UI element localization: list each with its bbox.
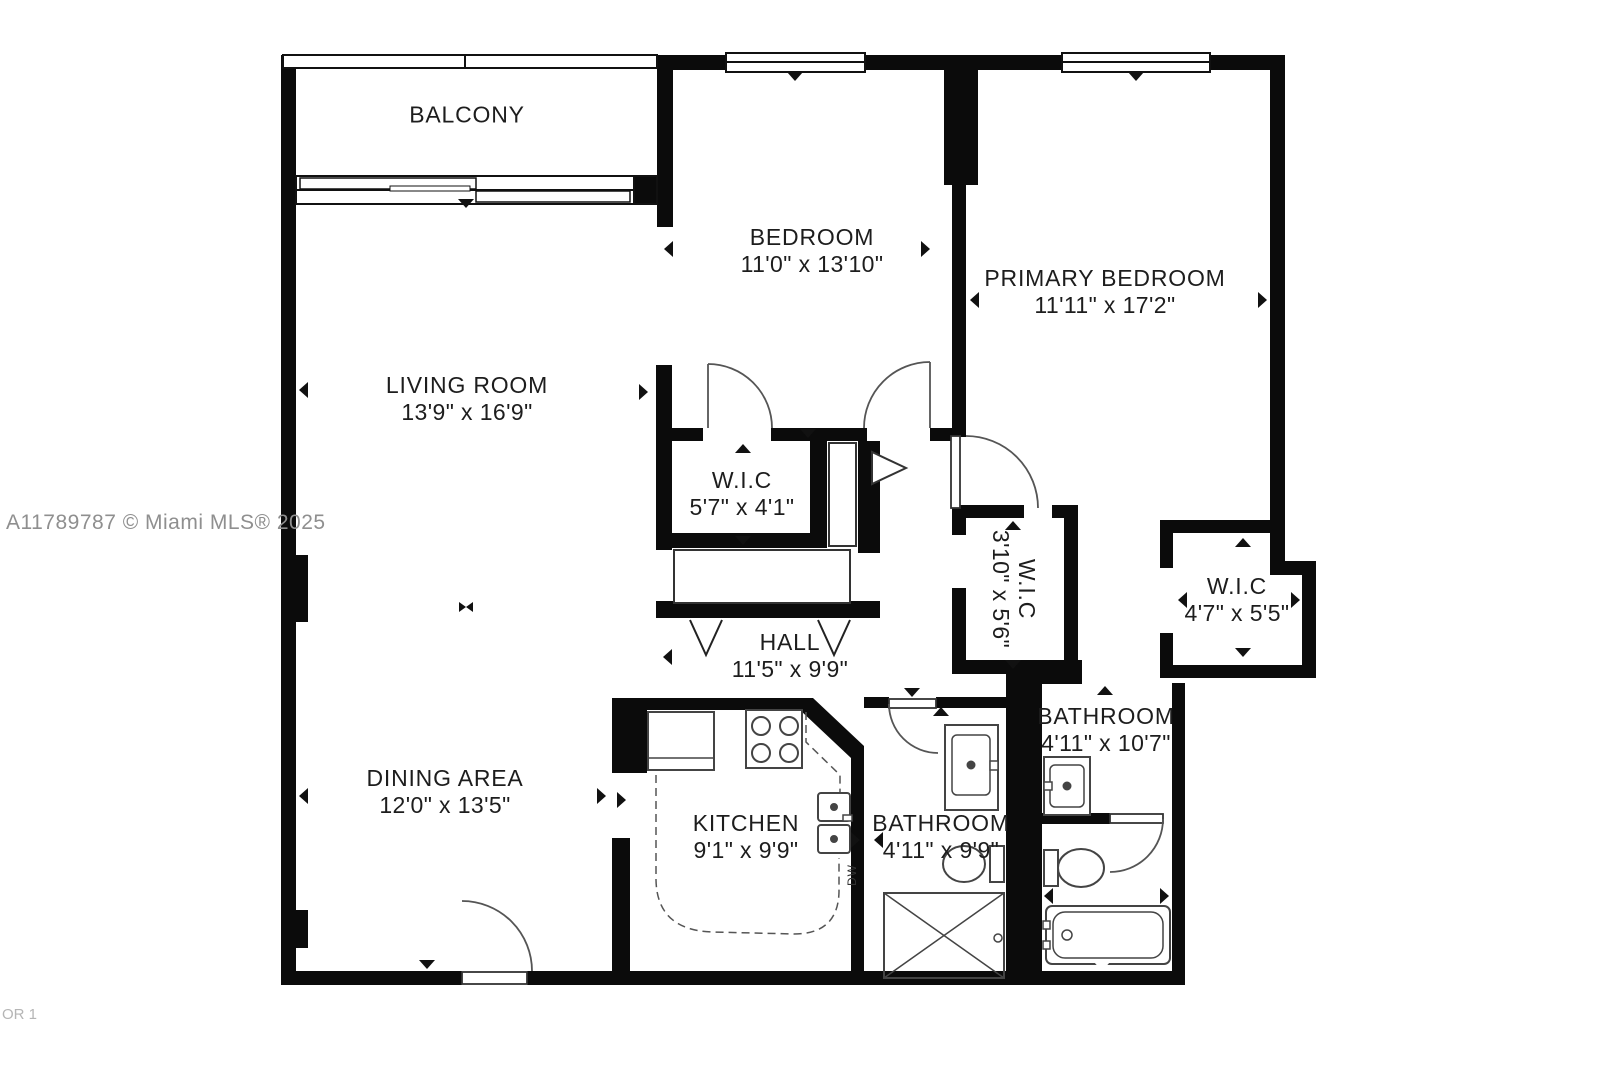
room-dims: 11'11" x 17'2" — [984, 292, 1225, 319]
bath-primary-door-arc — [1110, 819, 1163, 872]
dim-arrow-left — [1044, 888, 1053, 904]
room-label-bathroom-hall: BATHROOM 4'11" x 9'9" — [872, 810, 1010, 864]
dim-arrow-down — [1235, 648, 1251, 657]
room-label-wic-hall: W.I.C 5'7" x 4'1" — [690, 467, 795, 521]
bathroom-primary-fixtures — [1043, 757, 1170, 964]
faucet-icon — [831, 836, 838, 843]
wall-wic-right-outer — [1302, 561, 1316, 677]
hall-niche — [829, 443, 856, 546]
living-marker-icon — [459, 602, 466, 612]
room-name: DINING AREA — [366, 765, 523, 792]
floor-label: OR 1 — [2, 1006, 37, 1023]
wall-kitchen-west-upper — [612, 698, 647, 773]
wall-wic-center-west-a — [952, 505, 966, 535]
wall-wic-center-top-a — [966, 505, 1024, 518]
windows — [283, 53, 1210, 204]
tub-handle-icon — [1043, 921, 1050, 929]
dim-arrow-left — [970, 292, 979, 308]
faucet-icon — [967, 761, 975, 769]
room-name: KITCHEN — [693, 810, 800, 837]
room-label-wic-center: W.I.C 3'10" x 5'6" — [988, 530, 1040, 648]
dim-arrow-up — [1235, 538, 1251, 547]
wall-kitchen-west-lower — [612, 838, 630, 971]
wall-bottom-left — [281, 971, 462, 985]
faucet-icon — [1063, 782, 1071, 790]
bedroom-door-right-arc — [864, 362, 930, 428]
bathtub-inner — [1053, 912, 1163, 958]
room-label-primary-bedroom: PRIMARY BEDROOM 11'11" x 17'2" — [984, 265, 1225, 319]
bath-hall-door-leaf — [889, 699, 936, 708]
dimension-arrows — [299, 72, 1300, 971]
wall-bedroom-south-c — [930, 428, 952, 441]
entry-door-arc — [462, 901, 532, 971]
wall-pilaster-upper — [296, 555, 308, 622]
bedroom-door-left-arc — [708, 364, 772, 428]
wall-bedroom-primary — [952, 185, 966, 437]
wall-right-primary — [1270, 55, 1285, 575]
room-dims: 5'7" x 4'1" — [690, 494, 795, 521]
wall-bedroom-west — [656, 365, 672, 550]
balcony-slider-handle — [390, 186, 470, 191]
wall-kitchen-top — [647, 698, 800, 710]
room-label-bedroom: BEDROOM 11'0" x 13'10" — [741, 224, 884, 278]
bath-primary-door-leaf — [1110, 814, 1163, 823]
dim-arrow-right — [1160, 888, 1169, 904]
dim-arrow-down-white — [1094, 962, 1110, 971]
wall-pier-top — [944, 55, 978, 185]
entry-door-leaf — [462, 972, 527, 984]
room-dims: 3'10" x 5'6" — [988, 530, 1014, 648]
dim-arrow-up — [787, 72, 803, 81]
room-dims: 12'0" x 13'5" — [366, 792, 523, 819]
dim-arrow-up-white — [737, 961, 753, 970]
dim-arrow-right — [597, 788, 606, 804]
dim-arrow-left — [299, 788, 308, 804]
wall-bath-hall-top-b — [936, 697, 1006, 708]
room-name: PRIMARY BEDROOM — [984, 265, 1225, 292]
dim-arrow-up — [1097, 686, 1113, 695]
room-label-bathroom-primary: BATHROOM 4'11" x 10'7" — [1037, 703, 1175, 757]
wall-wic-right-stub-a — [1160, 520, 1173, 568]
dim-arrow-up — [1005, 521, 1021, 530]
primary-door-leaf — [951, 436, 960, 508]
wall-wic-hall-right — [810, 441, 827, 548]
room-name: BATHROOM — [872, 810, 1010, 837]
balcony-slider-panel-b — [476, 191, 630, 202]
wall-wic-right-bottom — [1160, 665, 1316, 678]
hall-closet-shelf — [674, 550, 850, 603]
dim-arrow-down — [904, 688, 920, 697]
door-wedge-icon — [872, 452, 906, 484]
closet-symbols — [459, 443, 906, 655]
room-label-wic-right: W.I.C 4'7" x 5'5" — [1185, 573, 1290, 627]
mls-watermark: A11789787 © Miami MLS® 2025 — [6, 511, 326, 535]
room-label-hall: HALL 11'5" x 9'9" — [732, 629, 848, 683]
dim-arrow-left — [663, 649, 672, 665]
wall-pilaster-lower — [296, 910, 308, 948]
dim-arrow-down — [419, 960, 435, 969]
tub-handle-icon — [1043, 941, 1050, 949]
wall-bedroom-south-a — [656, 428, 703, 441]
room-label-dining-area: DINING AREA 12'0" x 13'5" — [366, 765, 523, 819]
dim-arrow-right — [921, 241, 930, 257]
faucet-handle-icon — [990, 761, 998, 770]
room-name: W.I.C — [690, 467, 795, 494]
bath-hall-door-arc — [889, 704, 938, 753]
wall-kitchen-east — [851, 746, 864, 971]
wall-wic-right-stub-b — [1160, 633, 1173, 678]
dim-arrow-right — [639, 384, 648, 400]
room-dims: 9'1" x 9'9" — [693, 837, 800, 864]
room-name: BALCONY — [409, 102, 525, 129]
closet-hanger-icon — [690, 620, 722, 655]
room-name: W.I.C — [1014, 530, 1040, 648]
dim-arrow-up — [1128, 72, 1144, 81]
shower-head-icon — [994, 934, 1002, 942]
room-name: LIVING ROOM — [386, 372, 548, 399]
room-label-living-room: LIVING ROOM 13'9" x 16'9" — [386, 372, 548, 426]
room-dims: 11'5" x 9'9" — [732, 656, 848, 683]
room-label-kitchen: KITCHEN 9'1" x 9'9" — [693, 810, 800, 864]
room-dims: 4'11" x 10'7" — [1037, 730, 1175, 757]
toilet-tank — [1044, 850, 1058, 886]
primary-door-arc — [966, 436, 1038, 508]
dim-arrow-right — [617, 792, 626, 808]
room-dims: 4'7" x 5'5" — [1185, 600, 1290, 627]
dim-arrow-left — [664, 241, 673, 257]
wall-wic-center-east — [1064, 505, 1078, 673]
room-dims: 13'9" x 16'9" — [386, 399, 548, 426]
wall-bath-hall-top-a — [864, 697, 889, 708]
wall-bottom-right — [527, 971, 1185, 985]
faucet-handle-icon — [1044, 782, 1052, 790]
wall-top-bedroom-b — [865, 55, 944, 70]
toilet-bowl — [1058, 849, 1104, 887]
room-label-balcony: BALCONY — [409, 102, 525, 129]
balcony-slider-stub — [634, 176, 657, 204]
dishwasher-label: DW — [845, 864, 859, 886]
faucet-icon — [831, 804, 838, 811]
living-marker-icon — [466, 602, 473, 612]
room-name: BATHROOM — [1037, 703, 1175, 730]
wall-bedroom-south-b — [771, 428, 867, 441]
wall-top-primary-a — [978, 55, 1062, 70]
room-name: W.I.C — [1185, 573, 1290, 600]
balcony-rail-window — [283, 55, 657, 68]
wall-bath-primary-top — [1042, 672, 1082, 684]
room-dims: 11'0" x 13'10" — [741, 251, 884, 278]
dim-arrow-left — [299, 382, 308, 398]
dim-arrow-right — [1291, 592, 1300, 608]
room-name: BEDROOM — [741, 224, 884, 251]
room-name: HALL — [732, 629, 848, 656]
room-dims: 4'11" x 9'9" — [872, 837, 1010, 864]
wall-balcony-right — [657, 55, 673, 227]
floor-plan-page: BALCONY LIVING ROOM 13'9" x 16'9" DINING… — [0, 0, 1600, 1066]
dim-arrow-up — [735, 444, 751, 453]
wall-wic-right-top — [1160, 520, 1270, 533]
faucet-handle-icon — [843, 815, 852, 821]
dim-arrow-right — [1258, 292, 1267, 308]
fridge-counter — [648, 712, 714, 770]
